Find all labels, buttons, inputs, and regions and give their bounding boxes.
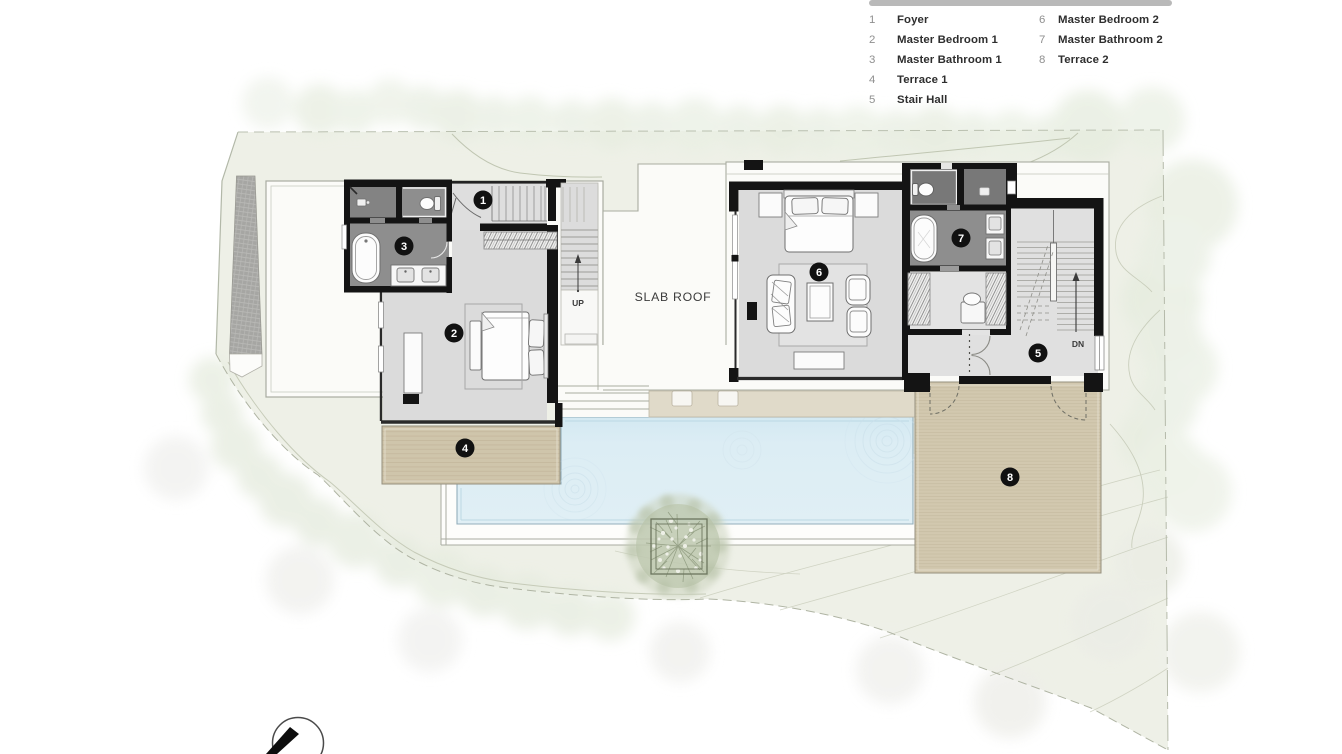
svg-text:Stair Hall: Stair Hall bbox=[897, 94, 947, 106]
svg-text:3: 3 bbox=[869, 54, 875, 66]
svg-text:5: 5 bbox=[1035, 348, 1041, 360]
svg-text:Master Bedroom 1: Master Bedroom 1 bbox=[897, 34, 999, 46]
svg-text:4: 4 bbox=[869, 74, 875, 86]
svg-text:Terrace 2: Terrace 2 bbox=[1058, 54, 1109, 66]
svg-text:8: 8 bbox=[1007, 472, 1013, 484]
svg-text:DN: DN bbox=[1072, 339, 1084, 349]
svg-text:4: 4 bbox=[462, 443, 469, 455]
svg-text:8: 8 bbox=[1039, 54, 1045, 66]
svg-text:5: 5 bbox=[869, 94, 875, 106]
svg-text:1: 1 bbox=[480, 195, 486, 207]
svg-text:3: 3 bbox=[401, 241, 407, 253]
svg-text:1: 1 bbox=[869, 14, 875, 26]
svg-text:Terrace 1: Terrace 1 bbox=[897, 74, 948, 86]
svg-text:2: 2 bbox=[451, 328, 457, 340]
svg-text:UP: UP bbox=[572, 298, 584, 308]
svg-text:7: 7 bbox=[958, 233, 964, 245]
svg-text:2: 2 bbox=[869, 34, 875, 46]
svg-text:6: 6 bbox=[1039, 14, 1045, 26]
svg-text:6: 6 bbox=[816, 267, 822, 279]
svg-text:SLAB ROOF: SLAB ROOF bbox=[635, 290, 712, 304]
svg-text:7: 7 bbox=[1039, 34, 1045, 46]
svg-text:Master Bathroom 2: Master Bathroom 2 bbox=[1058, 34, 1163, 46]
svg-text:Foyer: Foyer bbox=[897, 14, 929, 26]
svg-text:Master Bathroom 1: Master Bathroom 1 bbox=[897, 54, 1002, 66]
svg-text:Master Bedroom 2: Master Bedroom 2 bbox=[1058, 14, 1159, 26]
